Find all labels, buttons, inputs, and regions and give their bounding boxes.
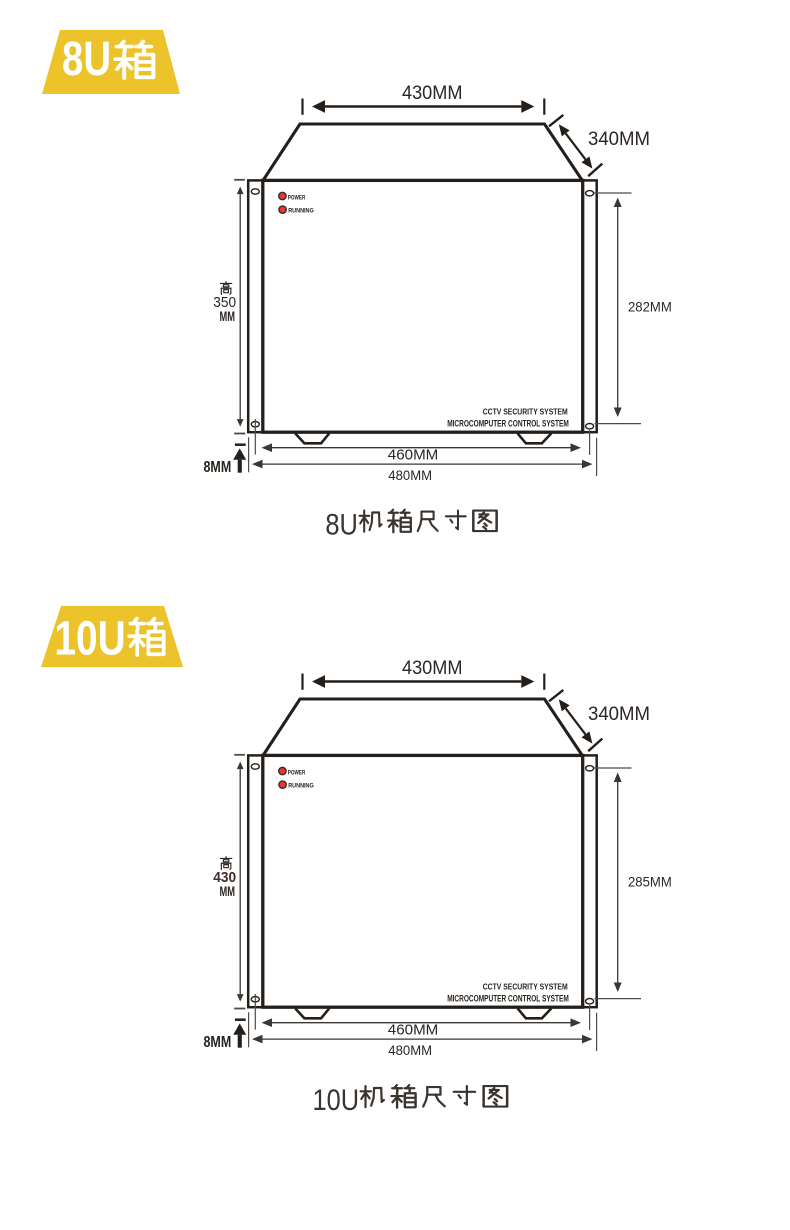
svg-text:CCTV SECURITY SYSTEM: CCTV SECURITY SYSTEM [483,982,568,992]
svg-text:MICROCOMPUTER CONTROL SYSTEM: MICROCOMPUTER CONTROL SYSTEM [447,418,569,428]
svg-text:8MM: 8MM [204,1034,232,1051]
svg-text:430MM: 430MM [402,82,463,104]
svg-text:460MM: 460MM [388,1023,439,1039]
svg-text:285MM: 285MM [628,875,672,890]
svg-text:POWER: POWER [288,770,306,777]
svg-text:460MM: 460MM [388,448,439,464]
svg-text:10U: 10U [313,1084,360,1117]
svg-text:282MM: 282MM [628,300,672,315]
svg-text:MM: MM [220,308,236,324]
svg-text:RUNNING: RUNNING [288,783,314,790]
svg-text:MM: MM [220,883,236,899]
svg-text:8U: 8U [325,509,358,542]
svg-text:8MM: 8MM [204,459,232,476]
svg-text:340MM: 340MM [588,128,650,150]
svg-text:CCTV SECURITY SYSTEM: CCTV SECURITY SYSTEM [483,407,568,417]
svg-text:RUNNING: RUNNING [288,208,314,215]
svg-text:480MM: 480MM [388,468,432,484]
svg-text:480MM: 480MM [388,1043,432,1059]
svg-text:430MM: 430MM [402,657,463,679]
svg-text:340MM: 340MM [588,703,650,725]
svg-text:MICROCOMPUTER CONTROL SYSTEM: MICROCOMPUTER CONTROL SYSTEM [447,993,569,1003]
svg-text:POWER: POWER [288,195,306,202]
svg-text:10U: 10U [54,613,125,666]
svg-text:8U: 8U [62,33,111,86]
